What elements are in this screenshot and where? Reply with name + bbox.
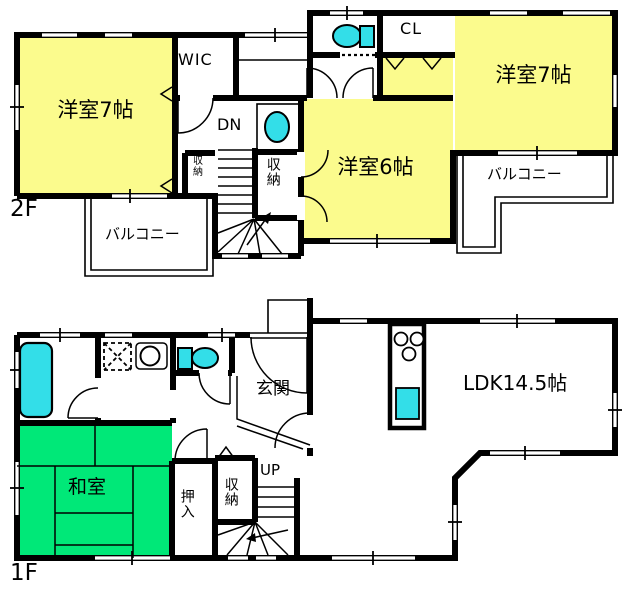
- washbasin-icon-2f: [265, 112, 289, 142]
- floor-plan-drawing: [0, 0, 631, 595]
- floor-label-2f: 2F: [10, 197, 38, 221]
- stairs-label-up: UP: [260, 463, 280, 479]
- closet-label-stairs-2f: 収納: [265, 157, 280, 187]
- room-label-entrance: 玄関: [256, 381, 290, 399]
- bathtub-icon: [20, 343, 52, 417]
- closet-label-cl: CL: [400, 21, 422, 38]
- room-label-bedroom-south-2f: 洋室6帖: [318, 156, 433, 178]
- door-gap: [297, 197, 305, 220]
- floor-label-1f: 1F: [10, 561, 38, 585]
- room-label-ldk: LDK14.5帖: [463, 373, 567, 394]
- room-label-bedroom-east-2f: 洋室7帖: [476, 64, 591, 86]
- porch-outline: [250, 300, 309, 338]
- washing-machine-icon: [104, 343, 131, 370]
- closet-label-hall-2f: 収納: [190, 155, 201, 177]
- floor-plan: 洋室7帖 WIC DN 収納 収納 CL 洋室7帖 洋室6帖 バルコニー バルコ…: [0, 0, 631, 595]
- room-fills: [17, 13, 615, 558]
- toilet-icon-1f: [178, 348, 218, 369]
- stairs-label-dn: DN: [217, 117, 241, 134]
- balcony-label-west: バルコニー: [105, 227, 180, 243]
- room-label-tatami: 和室: [68, 478, 106, 498]
- closet-label-oshiire: 押入: [179, 489, 194, 519]
- kitchen-counter: [390, 324, 424, 428]
- washbasin-icon-1f: [141, 347, 160, 366]
- sink-icon: [396, 388, 419, 419]
- balcony-label-east: バルコニー: [487, 167, 562, 183]
- room-label-wic: WIC: [178, 52, 213, 69]
- toilet-icon-2f: [333, 25, 374, 47]
- door-gap: [297, 152, 305, 177]
- room-label-bedroom-west-2f: 洋室7帖: [38, 99, 153, 121]
- closet-label-1f: 収納: [223, 477, 238, 507]
